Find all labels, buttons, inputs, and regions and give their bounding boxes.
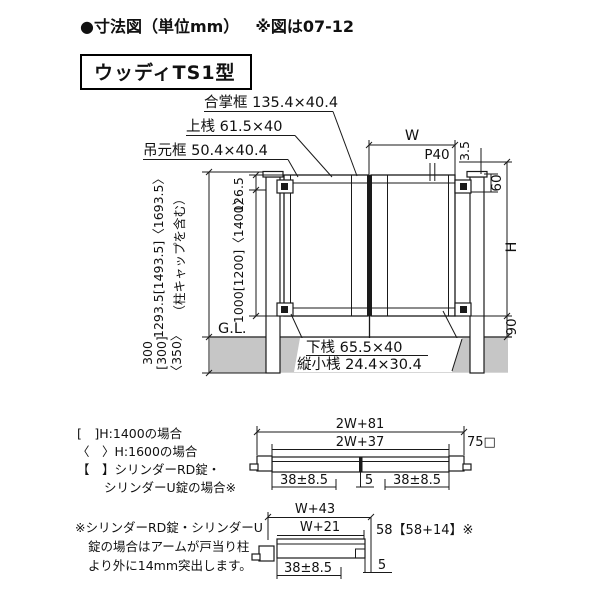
dim-pitch: P40 — [424, 147, 449, 181]
dim-hinge-offset: 60 — [489, 174, 505, 191]
left-post — [263, 172, 283, 374]
dim-top-gap: 3.5 — [457, 141, 472, 161]
footnote-line-1: ※シリンダーRD錠・シリンダーU — [75, 518, 263, 537]
dim-total-height: 1293.5[1493.5]〈1693.5〉 — [151, 172, 166, 338]
dim-bottom-clearance: 90 — [504, 318, 520, 335]
plan-single-arm: 58【58+14】※ — [376, 523, 473, 538]
plan-double-outer: 2W+81 — [336, 417, 385, 432]
legend-line-4: シリンダーU錠の場合※ — [104, 479, 236, 497]
part-labels: 合掌框 135.4×40.4 上桟 61.5×40 吊元框 50.4×40.4 — [143, 94, 357, 177]
footnote-line-3: より外に14mm突出します。 — [88, 556, 263, 575]
label-vertical-slat: 縦小桟 24.4×30.4 — [297, 356, 422, 373]
dim-embed-c: 〈350〉 — [169, 329, 184, 378]
bottom-labels: 下桟 65.5×40 縦小桟 24.4×30.4 — [291, 311, 462, 373]
legend-line-1: [ ]H:1400の場合 — [77, 425, 236, 443]
label-bottom-rail: 下桟 65.5×40 — [306, 339, 403, 356]
hinges — [277, 180, 471, 316]
plan-single-inner: W+21 — [300, 520, 340, 535]
gate-dimension-drawing: 合掌框 135.4×40.4 上桟 61.5×40 吊元框 50.4×40.4 … — [0, 0, 600, 600]
plan-double-gate: 2W+81 2W+37 75□ 38± — [250, 417, 496, 490]
meeting-gap — [367, 175, 372, 316]
legend-line-2: 〈 〉H:1600の場合 — [77, 443, 236, 461]
plan-double-right-gap: 38±8.5 — [393, 473, 441, 488]
legend: [ ]H:1400の場合 〈 〉H:1600の場合 【 】シリンダーRD錠・ シ… — [77, 425, 236, 497]
plan-double-left-gap: 38±8.5 — [280, 473, 328, 488]
dim-pitch-label: P40 — [424, 147, 449, 163]
plan-single-gate: W+43 W+21 58【58+14】※ 5 38±8.5 — [252, 502, 473, 579]
label-meeting-stile: 合掌框 135.4×40.4 — [204, 94, 338, 111]
right-post — [467, 172, 487, 374]
left-gate-leaf — [284, 175, 368, 316]
plan-double-inner: 2W+37 — [336, 435, 385, 450]
label-hinge-stile: 吊元框 50.4×40.4 — [143, 142, 268, 159]
plan-single-left-gap: 38±8.5 — [284, 561, 332, 576]
footnote-line-2: 錠の場合はアームが戸当り柱 — [88, 537, 263, 556]
footnote: ※シリンダーRD錠・シリンダーU 錠の場合はアームが戸当り柱 より外に14mm突… — [75, 518, 263, 575]
dim-width-label: W — [405, 128, 419, 144]
plan-double-center-gap: 5 — [365, 473, 373, 488]
dim-height: H — [504, 242, 520, 253]
dim-embed-a: 300 — [140, 341, 155, 365]
dimension-diagram-page: ●寸法図（単位mm）※図は07-12 ウッディTS1型 — [0, 0, 600, 600]
plan-single-gap: 5 — [378, 558, 386, 573]
plan-double-post: 75□ — [467, 435, 496, 450]
right-gate-leaf — [371, 175, 455, 316]
legend-line-3: 【 】シリンダーRD錠・ — [77, 461, 236, 479]
dim-panel-height: 1000[1200]〈1400〉 — [231, 193, 246, 323]
plan-single-outer: W+43 — [295, 502, 335, 517]
dim-total-height-note: （柱キャップを含む） — [172, 192, 187, 317]
dim-embed-b: [300] — [154, 336, 169, 370]
label-ground-line: G.L. — [218, 321, 247, 337]
label-top-rail: 上桟 61.5×40 — [186, 118, 283, 135]
